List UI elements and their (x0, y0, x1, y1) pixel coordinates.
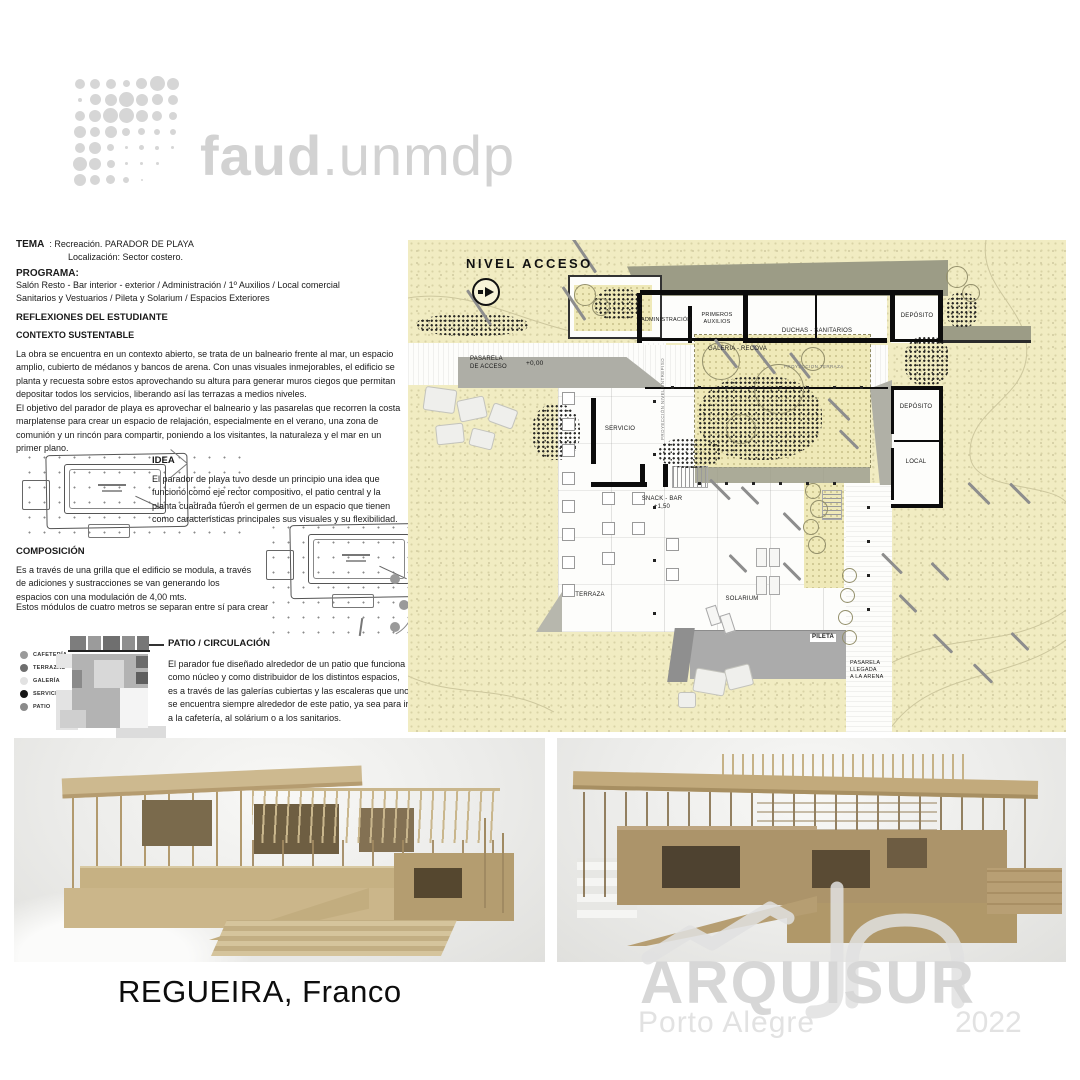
arquisur-watermark-city: Porto Alegre (638, 1006, 815, 1040)
miniplan-block (136, 672, 148, 684)
miniplan-block (72, 670, 82, 688)
programa-line1: Salón Resto - Bar interior - exterior / … (16, 279, 410, 292)
vegetation-cluster (658, 438, 722, 468)
logo-bold: faud (200, 124, 322, 187)
faud-dot-logo-icon (72, 76, 184, 192)
tree-circle (842, 630, 857, 645)
pileta-label: PILETA (810, 634, 836, 642)
wall-segment (640, 290, 943, 295)
logo-dot (169, 112, 177, 120)
column-node (671, 386, 674, 389)
rock (678, 692, 696, 708)
programa-block: PROGRAMA: Salón Resto - Bar interior - e… (16, 268, 410, 306)
composicion-text-1: Es a través de una grilla que el edifici… (16, 564, 256, 604)
sketch-scribble (98, 484, 126, 486)
logo-dot (106, 175, 115, 184)
contexto-paragraph-1: La obra se encuentra en un contexto abie… (16, 348, 408, 402)
table-glyph (562, 472, 575, 485)
proyeccion-terraza-label: PROYECCION TERRAZA (784, 364, 844, 370)
servicio-label: SERVICIO (598, 426, 642, 434)
logo-dot (75, 143, 85, 153)
logo-dot (78, 98, 82, 102)
column-node (653, 400, 656, 403)
administracion-label: ADMINISTRACIÓN (641, 317, 691, 324)
wall-segment (642, 338, 747, 341)
tree-circle (842, 568, 857, 583)
tema-label: TEMA (16, 239, 44, 250)
local-label: LOCAL (894, 459, 938, 467)
miniplan-block (68, 650, 150, 652)
logo-dot (105, 126, 117, 138)
column-node (779, 482, 782, 485)
patio-text: El parador fue diseñado alrededor de un … (168, 658, 410, 725)
logo-dot (123, 80, 130, 87)
tema-line2: Localización: Sector costero. (68, 251, 410, 264)
floor-plan: NIVEL ACCESO PASARELA DE ACCESO +0,00 AD… (408, 240, 1066, 732)
tree-circle (808, 536, 826, 554)
composicion-text-2: Estos módulos de cuatro metros se separa… (16, 601, 276, 614)
arquisur-watermark-year: 2022 (955, 1006, 1022, 1040)
column-node (806, 386, 809, 389)
wall-segment (891, 504, 943, 508)
cota-acceso-label: +0,00 (526, 360, 543, 368)
logo-dot (105, 94, 117, 106)
tema-line1: : Recreación. PARADOR DE PLAYA (49, 239, 194, 249)
contexto-title: CONTEXTO SUSTENTABLE (16, 330, 134, 340)
tree-circle (810, 500, 828, 518)
logo-dot (90, 94, 101, 105)
logo-dot (74, 126, 86, 138)
logo-dot (74, 174, 86, 186)
logo-dot (75, 79, 85, 89)
logo-dot (136, 94, 148, 106)
table-glyph (666, 568, 679, 581)
table-glyph (602, 552, 615, 565)
logo-dot (122, 128, 130, 136)
stairs-central (672, 466, 708, 488)
tree-circle (726, 414, 756, 444)
table-glyph (562, 556, 575, 569)
model-open-roof-joists (252, 788, 500, 843)
lounge-chair-glyph (756, 576, 767, 595)
sketch-rect (22, 480, 50, 510)
logo-light: .unmdp (322, 124, 515, 187)
rock (422, 386, 457, 414)
deposito1-label: DEPÓSITO (895, 313, 939, 321)
column-node (833, 386, 836, 389)
tree-circle (803, 519, 819, 535)
logo-dot (139, 145, 144, 150)
table-glyph (632, 522, 645, 535)
terraza-label: TERRAZA (570, 592, 610, 600)
column-node (752, 386, 755, 389)
logo-dot (138, 128, 145, 135)
column-node (779, 386, 782, 389)
column-node (867, 608, 870, 611)
legend-color-dot-icon (20, 651, 28, 659)
column-node (698, 482, 701, 485)
logo-dot (167, 78, 179, 90)
table-glyph (562, 418, 575, 431)
sketch-scribble (346, 560, 366, 562)
column-node (833, 482, 836, 485)
logo-dot (155, 146, 159, 150)
logo-dot (119, 92, 134, 107)
patio-title: PATIO / CIRCULACIÓN (168, 638, 270, 649)
column-node (806, 482, 809, 485)
tree-circle (838, 610, 853, 625)
model-photo-left (14, 738, 545, 962)
legend-color-dot-icon (20, 703, 28, 711)
logo-dot (125, 162, 128, 165)
logo-dot (123, 177, 129, 183)
legend-label: PATIO (33, 704, 51, 710)
programa-line2: Sanitarios y Vestuarios / Pileta y Solar… (16, 292, 410, 305)
proyeccion-entrepiso-label: PROYECCIÓN NIVEL ENTREPISO (660, 358, 666, 440)
duchas-sanitarios-label: DUCHAS - SANITARIOS (758, 328, 876, 336)
access-arrow-icon (472, 278, 500, 306)
logo-dot (107, 144, 114, 151)
column-node (867, 540, 870, 543)
table-glyph (666, 538, 679, 551)
logo-dot (171, 146, 174, 149)
logo-dot (119, 108, 134, 123)
logo-dot (150, 76, 165, 91)
composicion-grid-sketch (262, 516, 412, 640)
logo-dot (152, 111, 162, 121)
wall-segment (891, 390, 894, 434)
lounge-chair-glyph (769, 576, 780, 595)
rock (435, 423, 465, 446)
wall-segment (891, 386, 943, 390)
logo-dot (106, 79, 116, 89)
column-node (867, 574, 870, 577)
sketch-rect (88, 524, 130, 538)
logo-dot (125, 146, 128, 149)
logo-dot (90, 127, 100, 137)
logo-dot (90, 175, 100, 185)
logo-dot (168, 95, 178, 105)
wall-segment (663, 464, 668, 487)
column-node (698, 386, 701, 389)
column-node (653, 612, 656, 615)
sketch-rect (69, 469, 161, 509)
column-node (867, 506, 870, 509)
vegetation-cluster (904, 336, 950, 386)
logo-dot (140, 162, 143, 165)
wall-segment (591, 482, 647, 487)
column-node (725, 482, 728, 485)
wall-segment (891, 448, 894, 500)
column-node (725, 386, 728, 389)
poster-page: faud.unmdp TEMA : Recreación. PARADOR DE… (0, 0, 1080, 1080)
logo-dot (73, 157, 87, 171)
model-stairs (211, 920, 457, 956)
tree-circle (805, 483, 821, 499)
logo-dot (156, 162, 159, 165)
legend-color-dot-icon (20, 677, 28, 685)
snack-bar-label: SNACK - BAR +1,50 (636, 496, 688, 512)
idea-title: IDEA (152, 455, 175, 466)
logo-dot (170, 129, 176, 135)
wall-segment (747, 338, 887, 343)
wall-segment (894, 440, 940, 442)
miniplan-block (60, 710, 86, 728)
pasarela-llegada-label: PASARELA LLEGADA A LA ARENA (850, 660, 884, 681)
logo-dot (136, 110, 148, 122)
right-roof-strip (943, 326, 1031, 343)
faud-logotype: faud.unmdp (200, 128, 515, 184)
column-node (653, 559, 656, 562)
table-glyph (562, 528, 575, 541)
wall-segment (939, 386, 943, 508)
table-glyph (602, 492, 615, 505)
wall-segment (743, 292, 748, 343)
tree-circle (592, 298, 610, 316)
logo-dot (154, 129, 160, 135)
sketch-scribble (342, 554, 370, 556)
nivel-acceso-label: NIVEL ACCESO (466, 256, 593, 271)
column-node (653, 453, 656, 456)
legend-color-dot-icon (20, 690, 28, 698)
patio-terrace-roof-band (695, 467, 870, 483)
lounge-chair-glyph (769, 548, 780, 567)
logo-dot (89, 142, 101, 154)
student-name: REGUEIRA, Franco (118, 974, 402, 1010)
table-glyph (602, 522, 615, 535)
patio-mini-plan (56, 630, 168, 742)
column-node (752, 482, 755, 485)
wall-segment (591, 398, 596, 464)
galeria-recova-label: GALERIA - RECOVA (708, 346, 767, 354)
logo-dot (89, 110, 101, 122)
tree-circle (754, 364, 804, 414)
lounge-chair-glyph (756, 548, 767, 567)
logo-dot (141, 179, 143, 181)
deposito2-label: DEPÓSITO (894, 404, 938, 412)
reflexiones-title: REFLEXIONES DEL ESTUDIANTE (16, 312, 168, 323)
sketch-scribble (102, 490, 122, 492)
vegetation-cluster (416, 314, 528, 336)
tema-block: TEMA : Recreación. PARADOR DE PLAYA Loca… (16, 238, 410, 265)
logo-dot (90, 79, 100, 89)
legend-color-dot-icon (20, 664, 28, 672)
logo-dot (103, 108, 118, 123)
wall-segment (640, 464, 645, 487)
pasarela-acceso-label: PASARELA DE ACCESO (470, 356, 507, 372)
logo-dot (75, 111, 85, 121)
logo-dot (136, 78, 147, 89)
table-glyph (562, 392, 575, 405)
table-glyph (562, 500, 575, 513)
tree-circle (946, 266, 968, 288)
logo-dot (107, 160, 115, 168)
miniplan-block (120, 688, 148, 728)
composicion-title: COMPOSICIÓN (16, 546, 85, 557)
tree-circle (840, 588, 855, 603)
primeros-auxilios-label: PRIMEROS AUXILIOS (694, 312, 740, 326)
column-node (860, 386, 863, 389)
miniplan-block (94, 660, 124, 688)
miniplan-block (136, 656, 148, 668)
solarium-label: SOLARIUM (720, 596, 764, 604)
programa-label: PROGRAMA: (16, 268, 410, 279)
logo-dot (152, 94, 163, 105)
sketch-rect (266, 550, 294, 580)
logo-dot (89, 158, 101, 170)
table-glyph (562, 444, 575, 457)
tree-circle (962, 284, 980, 302)
